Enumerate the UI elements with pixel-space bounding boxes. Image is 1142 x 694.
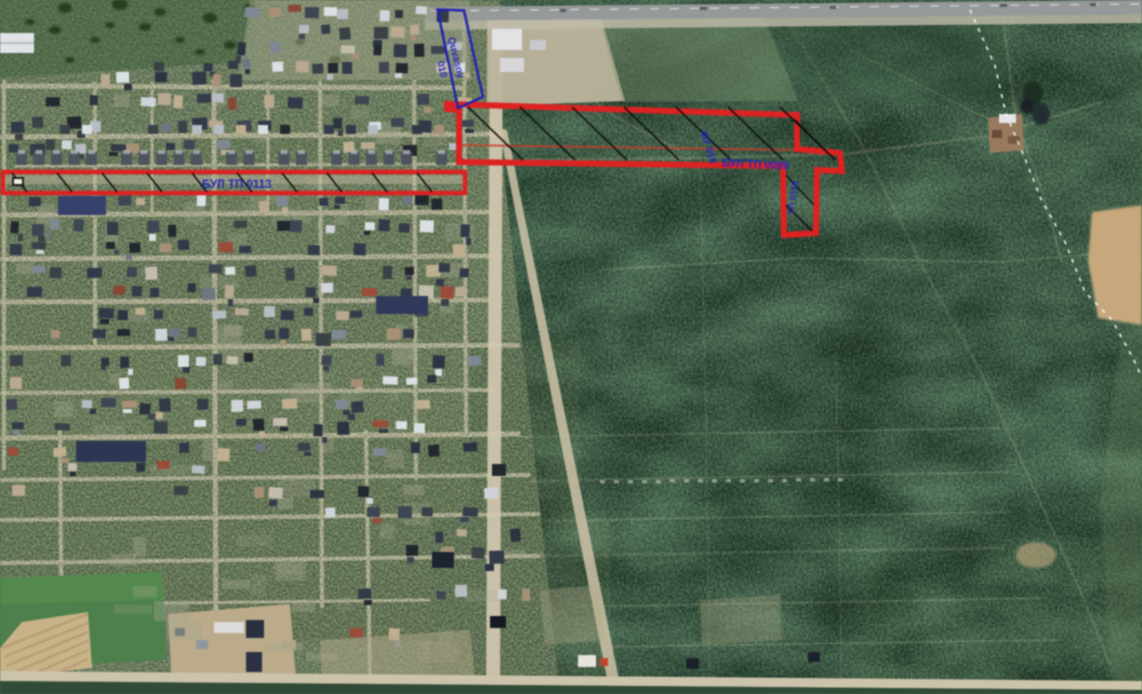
svg-text:БУЛ ТП 0113: БУЛ ТП 0113 xyxy=(202,179,271,191)
